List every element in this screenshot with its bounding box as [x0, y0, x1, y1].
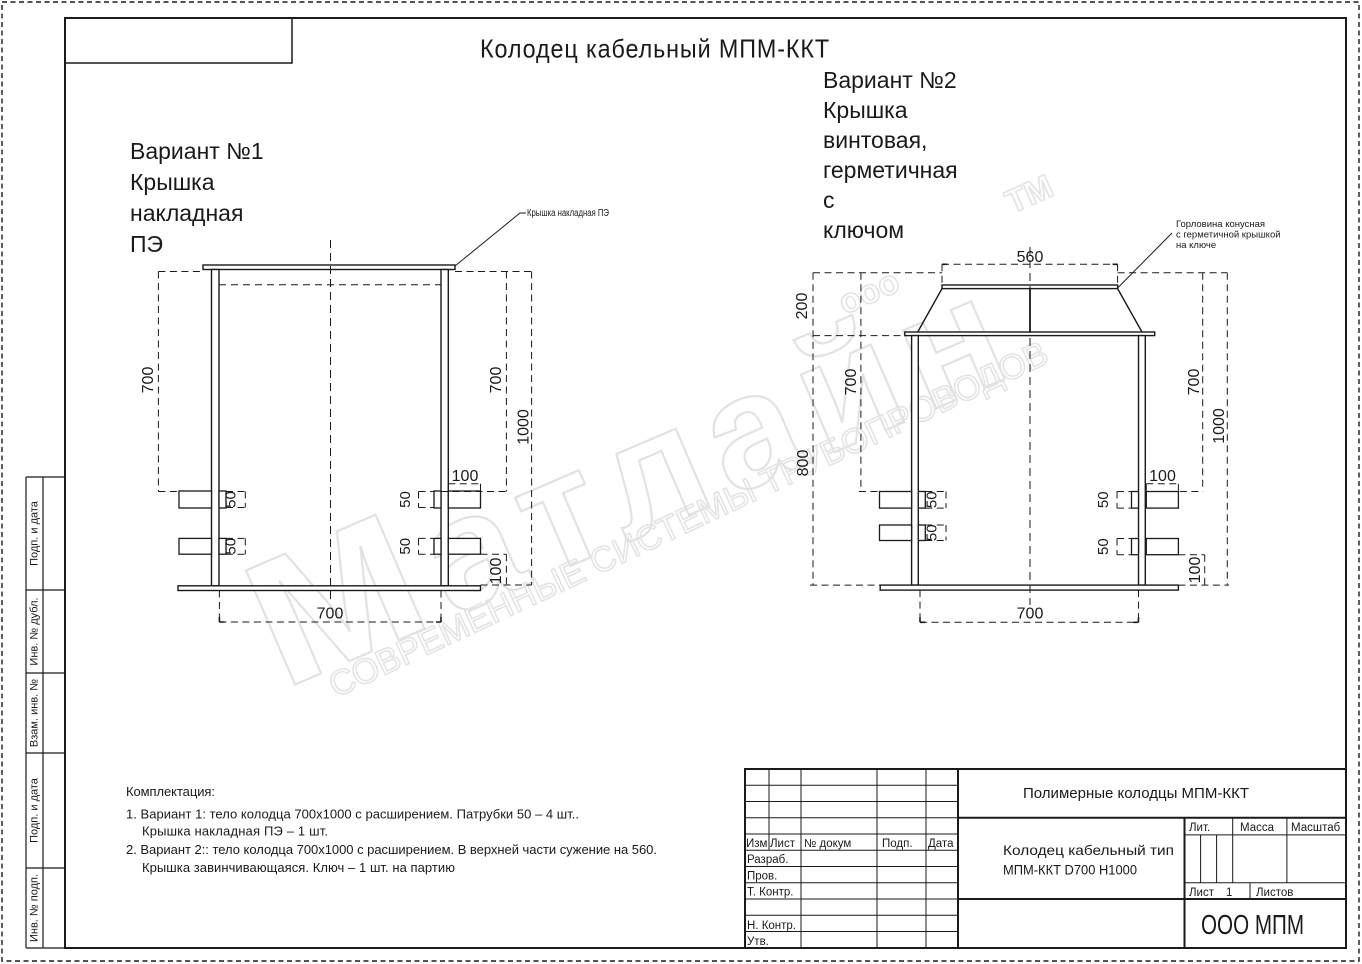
svg-text:Колодец кабельный МПМ-ККТ: Колодец кабельный МПМ-ККТ [480, 34, 830, 64]
svg-text:№ докум: № докум [804, 838, 851, 850]
svg-text:Инв. № подп.: Инв. № подп. [29, 874, 41, 942]
svg-text:700: 700 [843, 369, 860, 396]
svg-text:на ключе: на ключе [1176, 240, 1216, 251]
svg-text:ООО МПМ: ООО МПМ [1201, 909, 1304, 940]
svg-text:Подп. и дата: Подп. и дата [29, 500, 41, 566]
svg-text:Подп. и дата: Подп. и дата [29, 777, 41, 843]
svg-text:Лит.: Лит. [1189, 822, 1210, 834]
svg-text:Масса: Масса [1240, 822, 1275, 834]
svg-text:Вариант №1: Вариант №1 [130, 138, 264, 164]
svg-text:Н. Контр.: Н. Контр. [747, 920, 796, 932]
svg-text:2. Вариант 2:: тело колодца 70: 2. Вариант 2:: тело колодца 700х1000 с р… [126, 842, 657, 857]
svg-text:700: 700 [1017, 606, 1044, 623]
svg-text:Изм: Изм [746, 838, 768, 850]
svg-text:Крышка накладная ПЭ – 1 шт.: Крышка накладная ПЭ – 1 шт. [142, 824, 328, 839]
svg-text:Инв. № дубл.: Инв. № дубл. [29, 597, 41, 665]
svg-text:700: 700 [1186, 369, 1203, 396]
svg-text:Крышка: Крышка [823, 97, 908, 123]
svg-text:Крышка накладная ПЭ: Крышка накладная ПЭ [527, 208, 609, 219]
svg-text:Утв.: Утв. [747, 936, 769, 948]
svg-text:Подп.: Подп. [882, 838, 913, 850]
svg-text:50: 50 [924, 491, 941, 508]
svg-text:100: 100 [488, 558, 505, 585]
svg-text:с: с [823, 187, 835, 213]
svg-text:Комплектация:: Комплектация: [126, 784, 215, 799]
svg-text:1000: 1000 [516, 409, 533, 445]
svg-text:винтовая,: винтовая, [823, 127, 927, 153]
svg-text:50: 50 [924, 524, 941, 541]
svg-text:100: 100 [1187, 557, 1204, 584]
svg-text:50: 50 [1095, 491, 1112, 508]
svg-text:560: 560 [1017, 249, 1044, 266]
svg-text:50: 50 [397, 538, 414, 555]
svg-text:Листов: Листов [1256, 887, 1293, 899]
svg-text:ПЭ: ПЭ [130, 231, 163, 257]
svg-text:Крышка завинчивающаяся. Ключ –: Крышка завинчивающаяся. Ключ – 1 шт. на … [142, 860, 455, 875]
svg-text:Лист: Лист [770, 838, 796, 850]
svg-text:1. Вариант 1: тело колодца 700: 1. Вариант 1: тело колодца 700х1000 с ра… [126, 807, 579, 822]
svg-text:Масштаб: Масштаб [1291, 822, 1341, 834]
svg-text:Горловина конусная: Горловина конусная [1176, 219, 1265, 230]
svg-text:50: 50 [223, 491, 240, 508]
svg-text:50: 50 [223, 538, 240, 555]
svg-text:ключом: ключом [823, 217, 904, 243]
svg-text:50: 50 [1095, 538, 1112, 555]
svg-text:Дата: Дата [928, 838, 954, 850]
svg-text:Т. Контр.: Т. Контр. [747, 887, 793, 899]
svg-text:200: 200 [794, 293, 811, 320]
svg-text:50: 50 [397, 491, 414, 508]
svg-text:100: 100 [1149, 468, 1176, 485]
svg-text:700: 700 [488, 367, 505, 394]
svg-text:Взам. инв. №: Взам. инв. № [29, 679, 41, 747]
svg-text:герметичная: герметичная [823, 157, 958, 183]
svg-text:700: 700 [317, 606, 344, 623]
svg-text:100: 100 [452, 468, 479, 485]
svg-text:1000: 1000 [1211, 408, 1228, 444]
svg-text:Лист: Лист [1189, 887, 1215, 899]
svg-text:МПМ-ККТ D700 H1000: МПМ-ККТ D700 H1000 [1003, 862, 1137, 878]
svg-text:Крышка: Крышка [130, 169, 215, 195]
svg-text:800: 800 [795, 450, 812, 477]
svg-text:накладная: накладная [130, 200, 243, 226]
svg-text:1: 1 [1226, 887, 1232, 899]
svg-text:Разраб.: Разраб. [747, 854, 788, 866]
svg-text:700: 700 [140, 367, 157, 394]
svg-text:Пров.: Пров. [747, 871, 777, 883]
svg-text:Колодец кабельный тип: Колодец кабельный тип [1003, 842, 1174, 858]
svg-text:Полимерные колодцы МПМ-ККТ: Полимерные колодцы МПМ-ККТ [1023, 785, 1249, 802]
svg-text:Вариант №2: Вариант №2 [823, 67, 957, 93]
svg-text:с герметичной крышкой: с герметичной крышкой [1176, 230, 1281, 241]
